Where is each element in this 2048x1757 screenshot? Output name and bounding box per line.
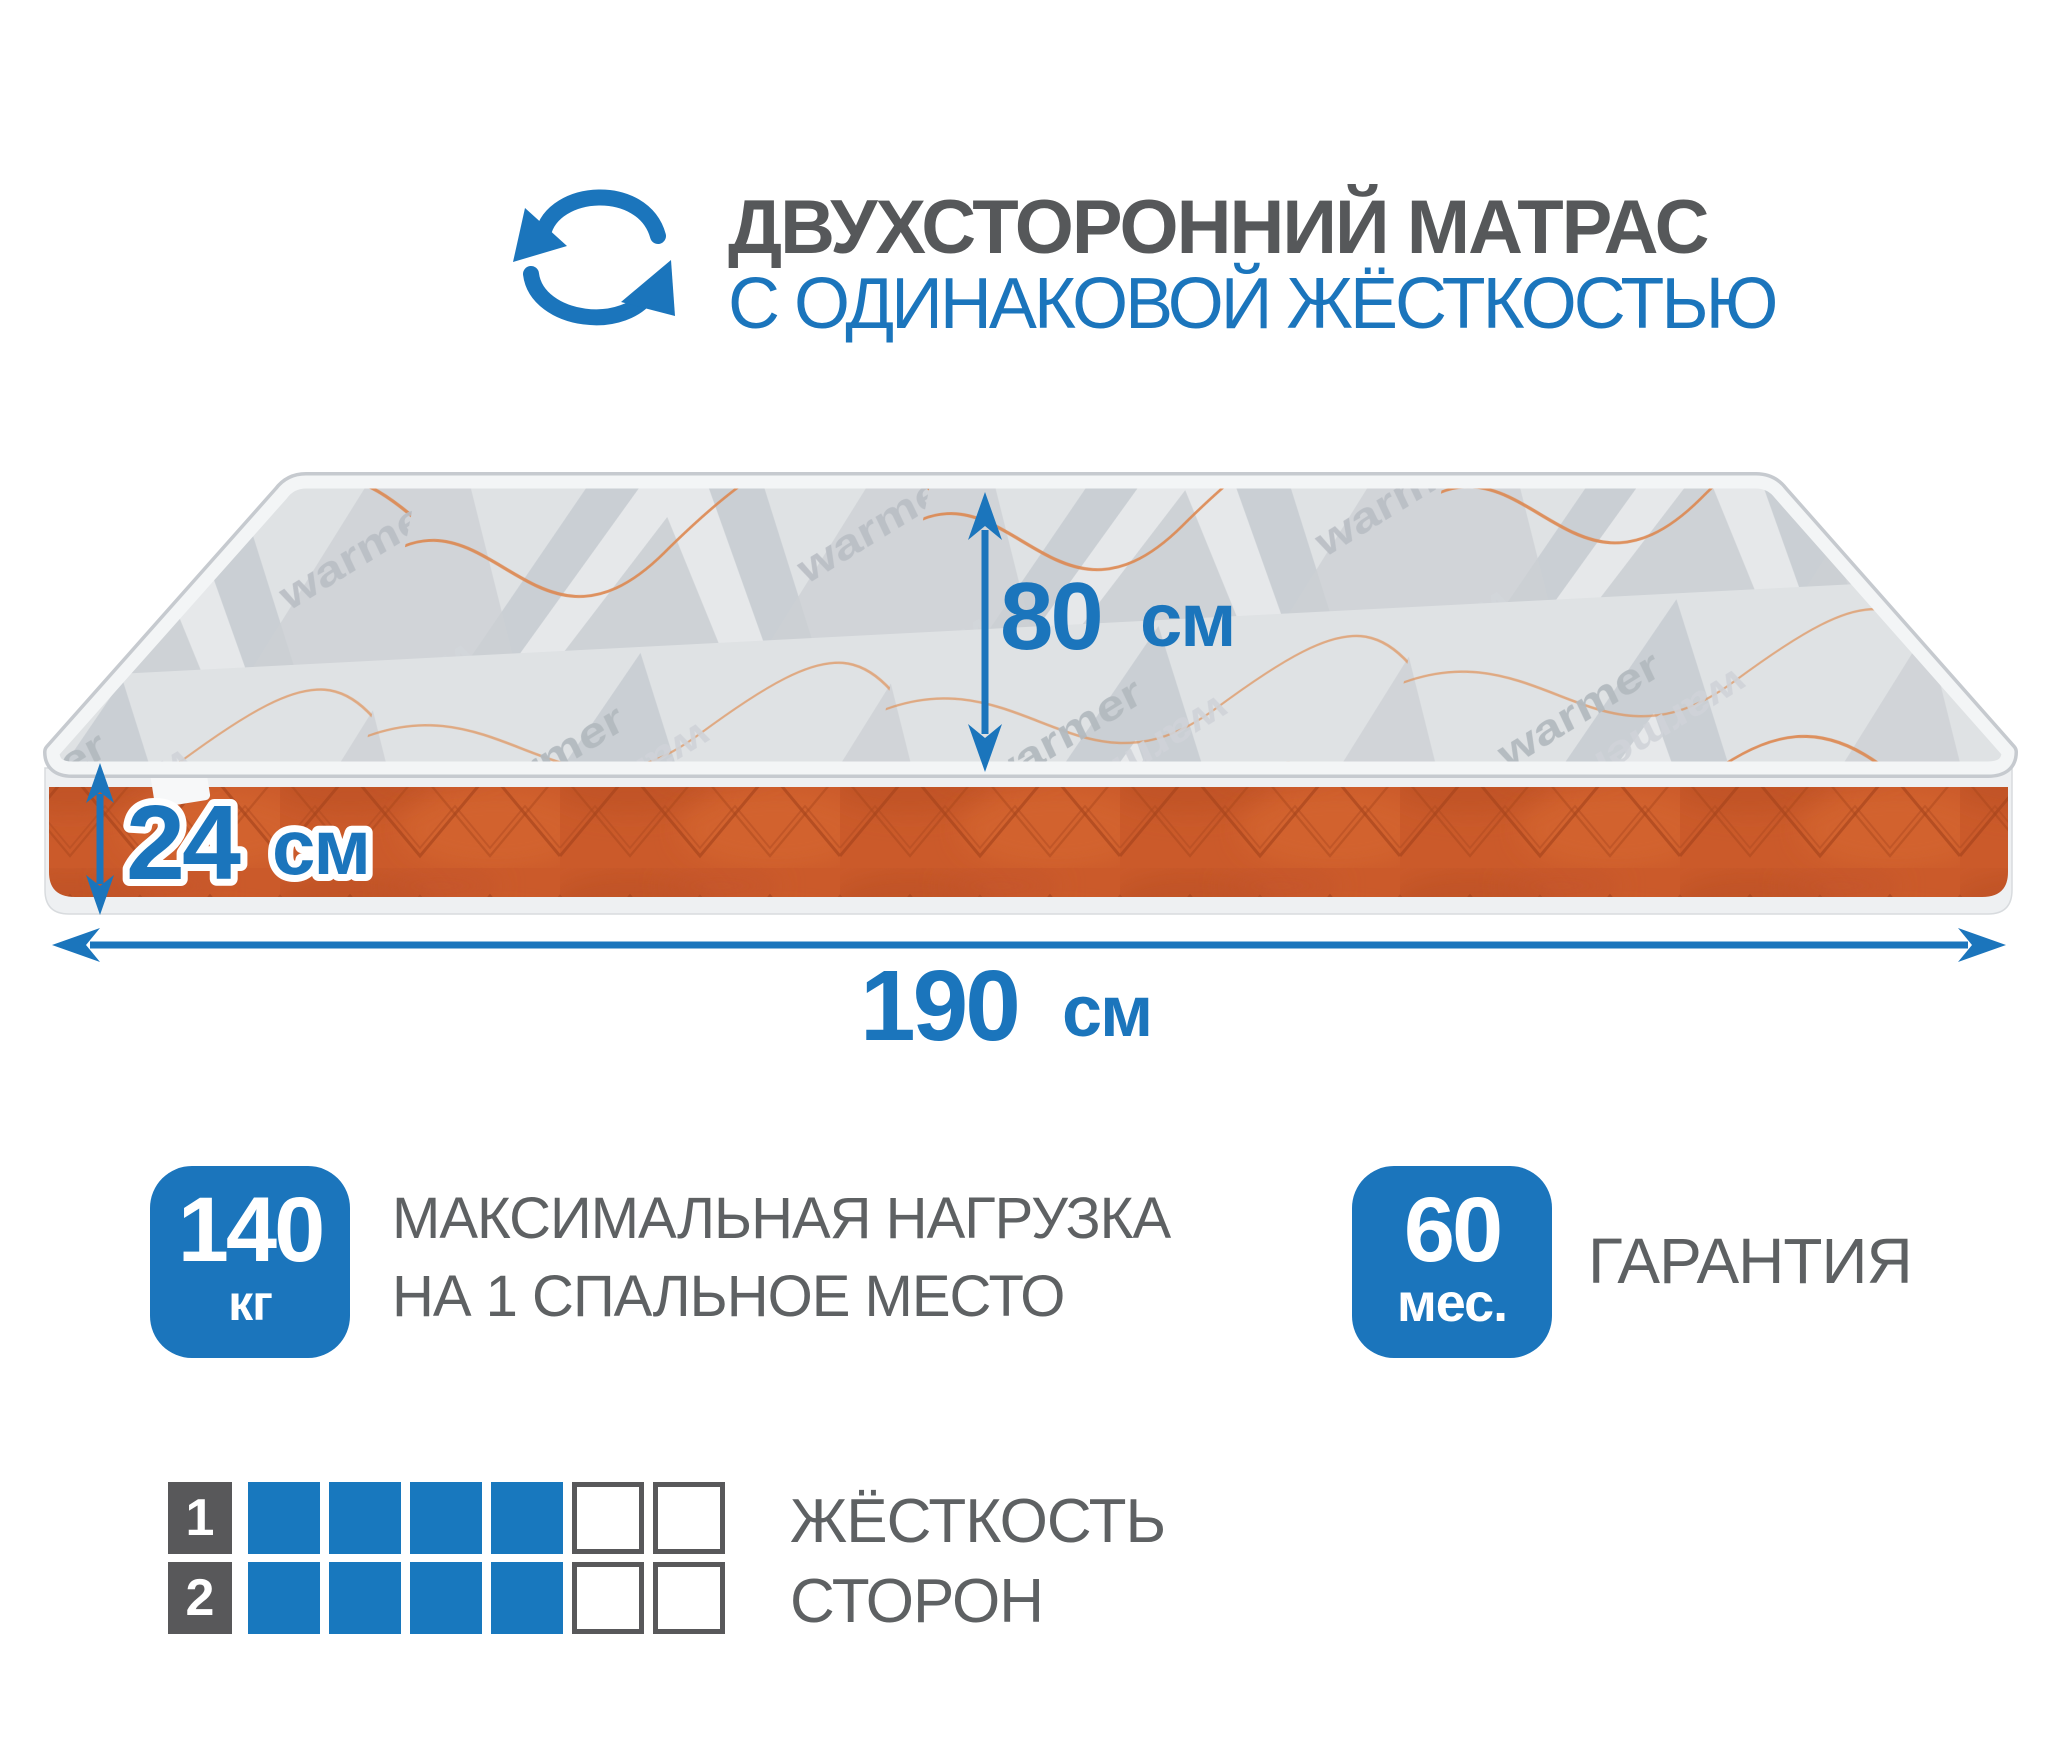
max-load-unit: кг bbox=[150, 1276, 350, 1330]
hardness-cell-empty bbox=[572, 1562, 644, 1634]
max-load-badge: 140 кг bbox=[150, 1166, 350, 1358]
hardness-cell-filled bbox=[329, 1562, 401, 1634]
length-dimension-arrow-icon bbox=[52, 928, 2006, 962]
hardness-label-line2: СТОРОН bbox=[790, 1566, 1043, 1638]
hardness-row-side1: 1 bbox=[168, 1482, 734, 1554]
width-unit: см bbox=[1140, 578, 1235, 663]
hardness-cell-filled bbox=[491, 1562, 563, 1634]
height-value: 24 bbox=[126, 784, 241, 902]
length-unit: см bbox=[1062, 972, 1151, 1052]
max-load-label-line2: НА 1 СПАЛЬНОЕ МЕСТО bbox=[392, 1258, 1064, 1336]
hardness-cell-filled bbox=[491, 1482, 563, 1554]
warranty-value: 60 bbox=[1352, 1184, 1552, 1276]
hardness-label-line1: ЖЁСТКОСТЬ bbox=[790, 1486, 1165, 1558]
height-unit: см bbox=[272, 803, 369, 891]
hardness-cell-filled bbox=[248, 1482, 320, 1554]
max-load-value: 140 bbox=[150, 1184, 350, 1276]
hardness-cell-filled bbox=[248, 1562, 320, 1634]
hardness-side-number: 2 bbox=[168, 1562, 232, 1634]
max-load-label-line1: МАКСИМАЛЬНАЯ НАГРУЗКА bbox=[392, 1180, 1170, 1258]
hardness-side-number: 1 bbox=[168, 1482, 232, 1554]
warranty-unit: мес. bbox=[1352, 1276, 1552, 1330]
hardness-cell-filled bbox=[329, 1482, 401, 1554]
infographic-canvas: ДВУХСТОРОННИЙ МАТРАС С ОДИНАКОВОЙ ЖЁСТКО… bbox=[0, 0, 2048, 1757]
width-value: 80 bbox=[1000, 563, 1101, 670]
warranty-label: ГАРАНТИЯ bbox=[1588, 1222, 1912, 1300]
hardness-cell-filled bbox=[410, 1562, 482, 1634]
hardness-cell-filled bbox=[410, 1482, 482, 1554]
length-value: 190 bbox=[860, 950, 1018, 1062]
hardness-cell-empty bbox=[572, 1482, 644, 1554]
hardness-cell-empty bbox=[653, 1562, 725, 1634]
hardness-cell-empty bbox=[653, 1482, 725, 1554]
hardness-row-side2: 2 bbox=[168, 1562, 734, 1634]
warranty-badge: 60 мес. bbox=[1352, 1166, 1552, 1358]
